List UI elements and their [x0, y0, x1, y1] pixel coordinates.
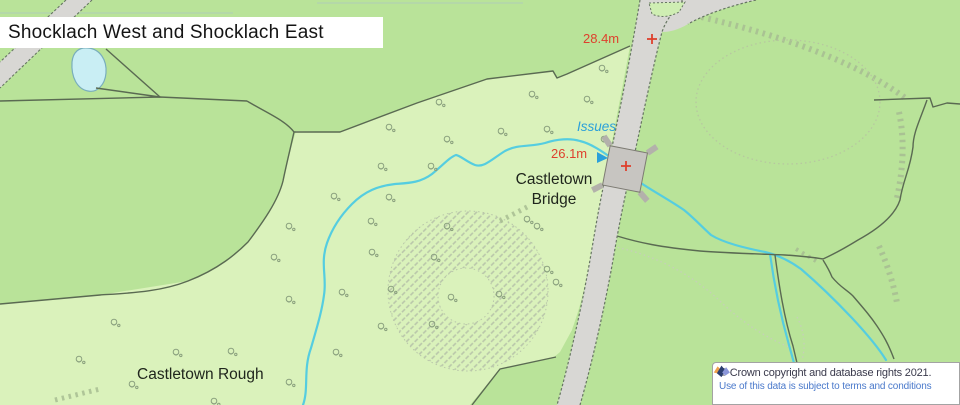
- issues-water-label: Issues: [577, 119, 616, 134]
- os-logo-icon: [713, 363, 733, 379]
- castletown-rough-label: Castletown Rough: [137, 366, 264, 384]
- castletown-bridge-label-line1: Castletown: [490, 170, 618, 190]
- terms-and-conditions-link[interactable]: Use of this data is subject to terms and…: [719, 381, 956, 392]
- spot-height-label-2: 26.1m: [551, 146, 587, 161]
- pond: [72, 48, 106, 91]
- map-drawing: [0, 0, 960, 405]
- castletown-bridge-label-line2: Bridge: [490, 190, 618, 210]
- earthwork-mound: [388, 211, 548, 371]
- map-title: Shocklach West and Shocklach East: [8, 22, 324, 44]
- map-title-banner: Shocklach West and Shocklach East: [0, 17, 383, 48]
- map-canvas: Shocklach West and Shocklach East 28.4m …: [0, 0, 960, 405]
- castletown-bridge-label: Castletown Bridge: [490, 170, 618, 210]
- copyright-text: © Crown copyright and database rights 20…: [719, 367, 931, 379]
- attribution-box: © Crown copyright and database rights 20…: [712, 362, 960, 405]
- spot-height-label-1: 28.4m: [583, 31, 619, 46]
